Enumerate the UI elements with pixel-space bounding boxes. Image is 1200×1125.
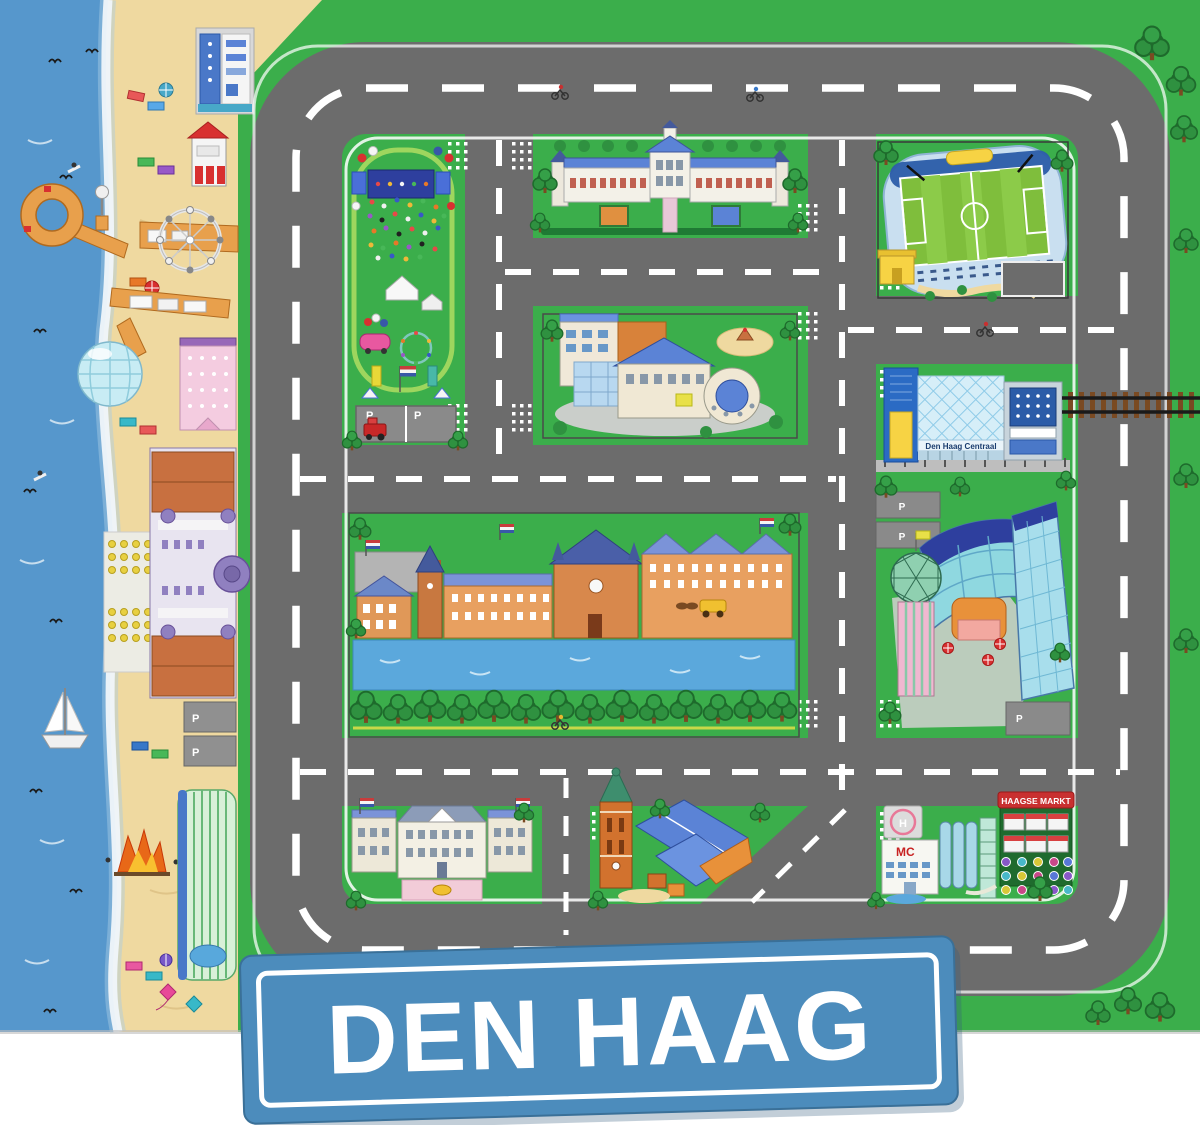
binnenhof-hofvijver (349, 513, 799, 737)
playmat-product-image: P P (0, 0, 1200, 1125)
playmat-svg: P P (0, 0, 1200, 1125)
park-parking: P P (356, 406, 456, 442)
parking-letter: P (414, 410, 421, 422)
ferris-wheel (157, 207, 224, 274)
stadium-kiosk (878, 250, 916, 284)
hospital-letters: MC (896, 845, 915, 859)
station-name-label: Den Haag Centraal (925, 442, 996, 451)
beach-hotel (180, 338, 236, 430)
football-stadium (878, 142, 1070, 302)
den-haag-sign: DEN HAAG (240, 936, 965, 1125)
parking-letter: P (192, 713, 199, 725)
parking-letter: P (899, 502, 906, 513)
market-banner-label: HAAGSE MARKT (1001, 796, 1071, 806)
garden-plot-orange (600, 206, 628, 226)
garden-plot-blue (712, 206, 740, 226)
glass-apartment-building (178, 790, 236, 980)
beach-pavilion (196, 28, 254, 114)
museum-theater (543, 314, 797, 438)
parking-letter: P (899, 532, 906, 543)
city-sign-text: DEN HAAG (325, 969, 875, 1094)
pier-dome (78, 342, 142, 406)
helipad-letter: H (899, 818, 907, 830)
parking-letter: P (192, 747, 199, 759)
den-haag-centraal-station: Den Haag Centraal (876, 368, 1070, 472)
hofvijver-pond (353, 640, 795, 690)
stadium-parking (1002, 262, 1064, 296)
parking-letter: P (1016, 714, 1023, 725)
station-glass-hall (918, 376, 1004, 440)
